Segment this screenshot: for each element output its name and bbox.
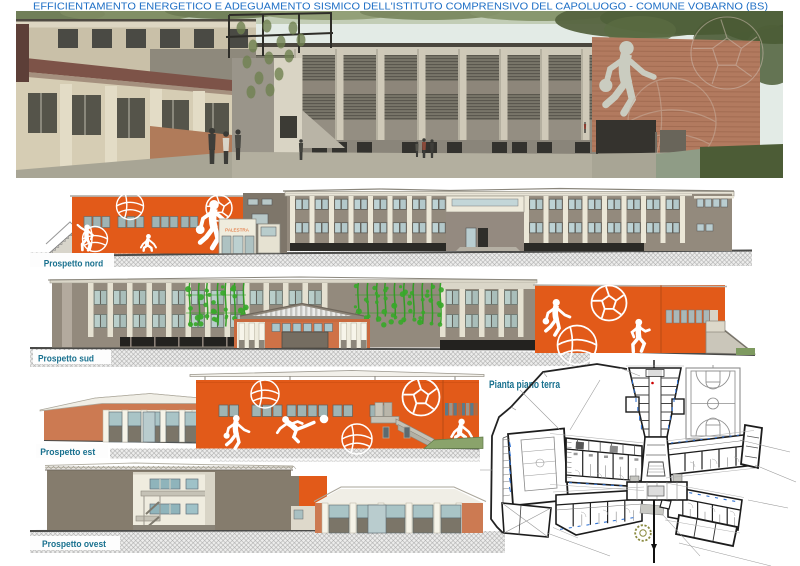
svg-text:Prospetto ovest: Prospetto ovest xyxy=(42,539,107,550)
svg-text:Pianta piano terra: Pianta piano terra xyxy=(489,379,560,391)
svg-text:EFFICIENTAMENTO ENERGETICO E A: EFFICIENTAMENTO ENERGETICO E ADEGUAMENTO… xyxy=(33,2,768,13)
svg-text:PALESTRA: PALESTRA xyxy=(225,228,250,233)
svg-text:Prospetto sud: Prospetto sud xyxy=(38,354,94,365)
svg-text:Prospetto est: Prospetto est xyxy=(40,447,96,458)
svg-text:Prospetto nord: Prospetto nord xyxy=(44,258,104,269)
